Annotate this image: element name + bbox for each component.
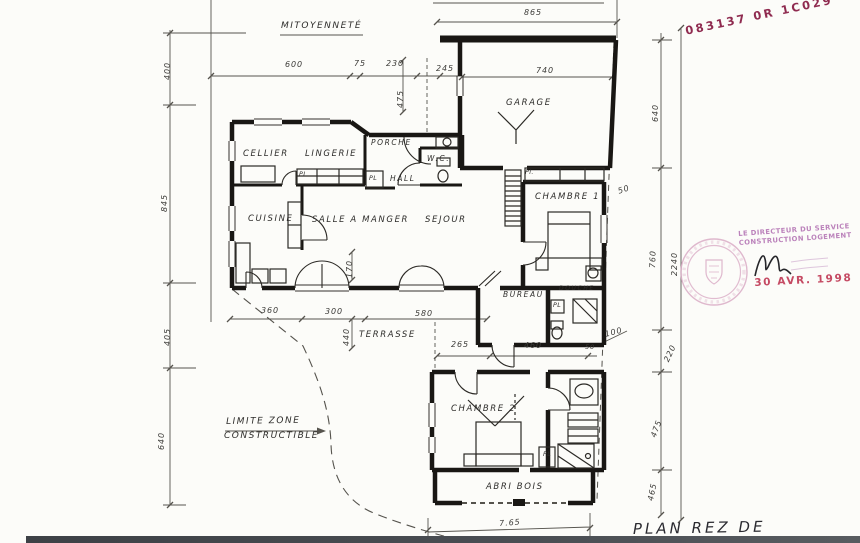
dim-label-405-left: 405 [164,328,172,346]
room-label-abri-bois: ABRI BOIS [486,483,544,492]
dim-label-245: 245 [436,65,454,73]
dim-label-865: 865 [524,9,542,17]
dim-label-300: 300 [325,308,343,316]
dim-label-75: 75 [354,60,366,68]
dim-label-740: 740 [536,67,554,75]
dim-label-2240-right: 2240 [671,252,679,276]
room-label-terrasse: TERRASSE [359,331,416,340]
dim-label-400-left: 400 [164,62,172,80]
room-label-chambre-2: CHAMBRE 2 [451,405,516,414]
dim-label-265: 265 [451,341,469,349]
dim-label-50-terrasse: 50 [585,344,595,351]
annot-label-limite-zone-line2: CONSTRUCTIBLE [224,432,319,441]
dim-label-170: 170 [346,260,354,278]
floor-plan-scan: CELLIERLINGERIEPORCHEW.C.HALLCUISINESALL… [0,0,860,543]
room-label-lingerie: LINGERIE [305,150,357,159]
closet-label-hall-pl: PL [369,176,377,182]
room-label-hall: HALL [390,175,416,183]
signature [755,256,791,276]
windows [229,76,607,453]
dim-label-440: 440 [343,328,351,346]
dim-label-475-top: 475 [397,90,405,108]
room-label-cuisine: CUISINE [248,215,294,224]
closet-label-lingerie-pl: PL [299,172,307,178]
room-label-garage: GARAGE [506,99,552,108]
dim-label-580: 580 [415,310,433,318]
room-label-cellier: CELLIER [243,150,289,159]
room-label-porche: PORCHE [371,139,412,147]
dim-label-360: 360 [261,307,279,315]
room-label-chambre-1: CHAMBRE 1 [535,193,600,202]
scan-edge-bar [26,536,860,543]
closet-label-chambre2-pl: PL [543,452,551,458]
dim-label-765: 7.65 [499,519,521,528]
dim-label-640-right: 640 [652,104,660,122]
annot-label-limite-zone-line1: LIMITE ZONE [226,417,300,427]
annot-label-mitoyennete: MITOYENNETÉ [281,22,362,31]
room-label-sejour: SEJOUR [425,216,467,225]
dim-label-600: 600 [285,61,303,69]
room-label-bureau: BUREAU [503,291,544,299]
room-label-salle-a-manger: SALLE A MANGER [312,216,409,225]
room-label-douche: DOUCHE [559,286,595,292]
closet-label-chambre1-pl: Pl. [525,170,534,176]
dim-label-760-right: 760 [649,250,658,268]
dim-label-460: 460 [524,342,542,350]
room-label-wc: W.C. [427,155,450,163]
dim-label-845-left: 845 [161,194,169,212]
dim-label-640-left: 640 [158,432,166,450]
closet-label-douche-pl: PL [553,303,561,309]
dim-label-230: 230 [386,60,404,68]
municipal-seal-stamp [681,239,828,305]
plan-linework [0,0,860,543]
